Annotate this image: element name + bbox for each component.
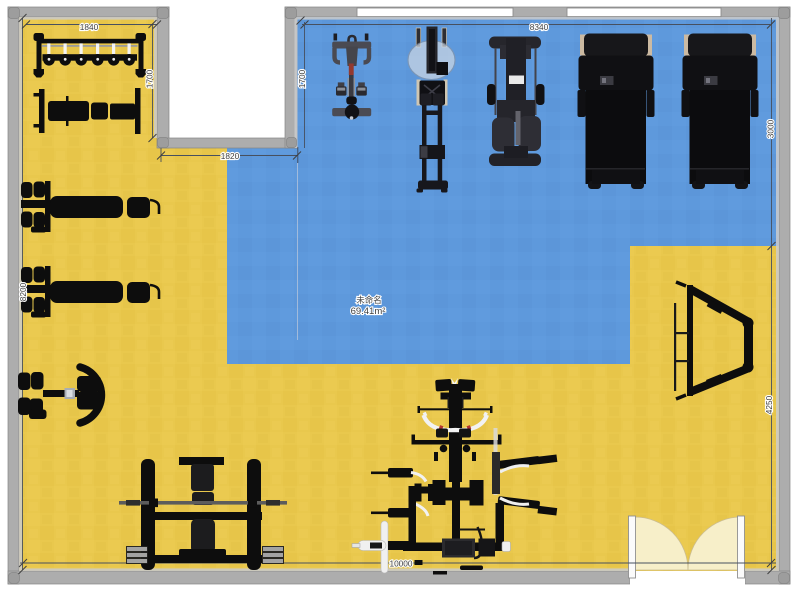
svg-text:69.41m²: 69.41m² [351,306,386,317]
svg-text:8340: 8340 [530,22,549,32]
svg-text:4250: 4250 [764,395,774,414]
svg-text:1820: 1820 [221,151,240,161]
svg-text:1700: 1700 [145,69,155,88]
svg-text:1700: 1700 [297,69,307,88]
svg-text:8200: 8200 [18,282,28,301]
svg-text:3000: 3000 [766,119,776,138]
svg-text:未命名: 未命名 [356,295,382,305]
svg-text:10000: 10000 [389,559,412,569]
svg-text:1840: 1840 [80,22,99,32]
